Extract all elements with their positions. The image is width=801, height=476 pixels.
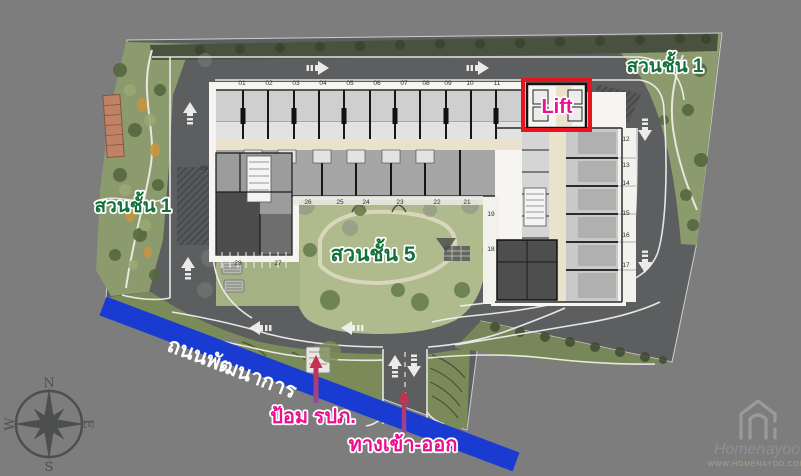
unit-number: 17 bbox=[622, 262, 630, 269]
compass-south: S bbox=[45, 460, 54, 475]
parking-number: 10 bbox=[466, 80, 474, 87]
unit-number: 19 bbox=[487, 211, 495, 218]
stall-number: 26 bbox=[304, 199, 312, 206]
stall-number: 27 bbox=[274, 260, 282, 267]
garden-floor5-label: สวนชั้น 5 bbox=[330, 238, 415, 266]
unit-number: 16 bbox=[622, 232, 630, 239]
parking-number: 01 bbox=[238, 80, 246, 87]
unit-number: 12 bbox=[622, 136, 630, 143]
parking-number: 05 bbox=[346, 80, 354, 87]
tower-west bbox=[216, 153, 292, 255]
compass-north: N bbox=[43, 376, 54, 391]
site-plan-screenshot: 01 02 03 04 05 06 07 08 09 10 11 12 13 1… bbox=[0, 0, 801, 476]
site-plan-canvas: 01 02 03 04 05 06 07 08 09 10 11 12 13 1… bbox=[0, 0, 801, 476]
trellis-left bbox=[177, 167, 210, 245]
compass-east: E bbox=[80, 419, 95, 429]
homenayoo-url: WWW.HOMENAYOO.COM bbox=[707, 461, 801, 468]
parking-number: 09 bbox=[444, 80, 452, 87]
corridor-main bbox=[216, 140, 562, 150]
parking-number: 02 bbox=[265, 80, 273, 87]
unit-number: 18 bbox=[487, 246, 495, 253]
stall-number: 29 bbox=[200, 165, 208, 172]
unit-row-north bbox=[216, 90, 522, 140]
stall-number: 22 bbox=[433, 199, 441, 206]
parking-number: 03 bbox=[292, 80, 300, 87]
parking-number: 07 bbox=[400, 80, 408, 87]
green-entrance-right bbox=[428, 348, 470, 428]
stall-number: 21 bbox=[463, 199, 471, 206]
unit-number: 13 bbox=[622, 162, 630, 169]
parking-number: 08 bbox=[422, 80, 430, 87]
guard-post-label: ป้อม รปภ. bbox=[270, 405, 356, 428]
lift-label: Lift bbox=[541, 96, 572, 118]
neighbour-building bbox=[103, 94, 124, 157]
stall-number: 23 bbox=[396, 199, 404, 206]
garden-walkway bbox=[293, 196, 483, 205]
stall-number: 24 bbox=[362, 199, 370, 206]
stall-number: 28 bbox=[234, 260, 242, 267]
unit-number: 15 bbox=[622, 210, 630, 217]
parking-number: 06 bbox=[373, 80, 381, 87]
homenayoo-brand: Homenayoo bbox=[714, 441, 800, 458]
stall-number: 25 bbox=[336, 199, 344, 206]
entrance-exit-label: ทางเข้า-ออก bbox=[349, 433, 458, 456]
unit-number: 14 bbox=[622, 180, 630, 187]
compass-west: W bbox=[3, 417, 18, 431]
parking-number: 04 bbox=[319, 80, 327, 87]
parking-number: 11 bbox=[494, 80, 501, 87]
